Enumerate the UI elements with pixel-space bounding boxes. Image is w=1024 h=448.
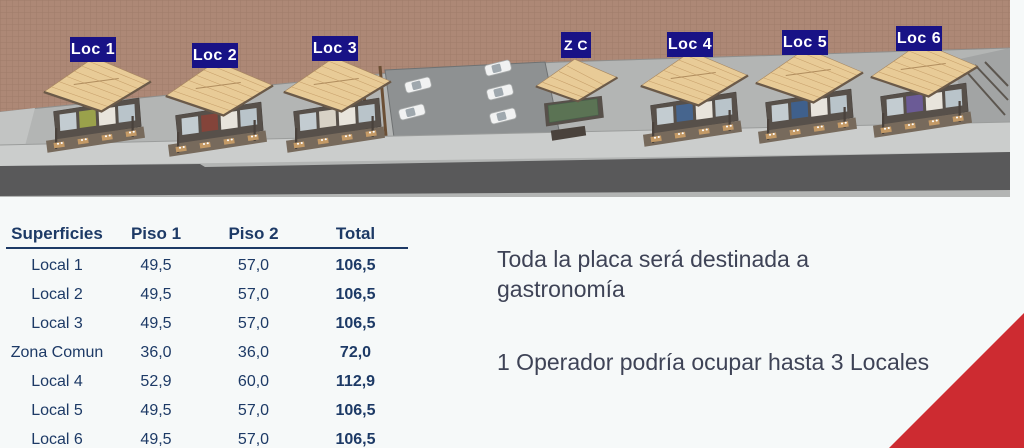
label-loc-1: Loc 1 bbox=[70, 37, 116, 62]
table-row: Local 3 49,5 57,0 106,5 bbox=[6, 309, 408, 338]
label-loc-2: Loc 2 bbox=[192, 43, 238, 68]
row-piso1: 49,5 bbox=[108, 396, 204, 425]
row-piso1: 49,5 bbox=[108, 251, 204, 280]
label-zona-comun: Z C bbox=[561, 32, 591, 58]
header-rule bbox=[6, 247, 408, 249]
surfaces-table-header: Superficies Piso 1 Piso 2 Total bbox=[6, 221, 408, 251]
row-label: Local 6 bbox=[6, 425, 108, 448]
row-total: 106,5 bbox=[303, 309, 408, 338]
row-piso2: 60,0 bbox=[204, 367, 303, 396]
site-render-canvas bbox=[0, 0, 1010, 197]
row-label: Local 4 bbox=[6, 367, 108, 396]
header-piso-1: Piso 1 bbox=[108, 221, 204, 247]
note-gastronomy: Toda la placa será destinada a gastronom… bbox=[497, 244, 867, 305]
row-piso2: 57,0 bbox=[204, 425, 303, 448]
table-row: Local 6 49,5 57,0 106,5 bbox=[6, 425, 408, 448]
row-piso2: 57,0 bbox=[204, 309, 303, 338]
surfaces-table: Superficies Piso 1 Piso 2 Total Local 1 … bbox=[6, 221, 408, 448]
table-row: Local 1 49,5 57,0 106,5 bbox=[6, 251, 408, 280]
row-piso2: 57,0 bbox=[204, 396, 303, 425]
table-row: Local 4 52,9 60,0 112,9 bbox=[6, 367, 408, 396]
table-row: Local 2 49,5 57,0 106,5 bbox=[6, 280, 408, 309]
parking-area bbox=[385, 60, 560, 145]
slide-background: Loc 1 Loc 2 Loc 3 Z C Loc 4 Loc 5 Loc 6 … bbox=[0, 0, 1024, 448]
header-superficies: Superficies bbox=[6, 221, 108, 247]
label-loc-4: Loc 4 bbox=[667, 32, 713, 57]
row-label: Local 3 bbox=[6, 309, 108, 338]
row-total: 106,5 bbox=[303, 425, 408, 448]
row-total: 112,9 bbox=[303, 367, 408, 396]
header-piso-2: Piso 2 bbox=[204, 221, 303, 247]
notes-block: Toda la placa será destinada a gastronom… bbox=[497, 244, 977, 377]
note-operator: 1 Operador podría ocupar hasta 3 Locales bbox=[497, 347, 977, 377]
row-total: 106,5 bbox=[303, 396, 408, 425]
row-piso1: 36,0 bbox=[108, 338, 204, 367]
header-total: Total bbox=[303, 221, 408, 247]
row-total: 106,5 bbox=[303, 251, 408, 280]
row-piso1: 52,9 bbox=[108, 367, 204, 396]
row-piso1: 49,5 bbox=[108, 309, 204, 338]
row-label: Zona Comun bbox=[6, 338, 108, 367]
row-piso2: 57,0 bbox=[204, 251, 303, 280]
row-piso1: 49,5 bbox=[108, 280, 204, 309]
row-total: 72,0 bbox=[303, 338, 408, 367]
row-piso2: 36,0 bbox=[204, 338, 303, 367]
row-total: 106,5 bbox=[303, 280, 408, 309]
table-row: Zona Comun 36,0 36,0 72,0 bbox=[6, 338, 408, 367]
table-row: Local 5 49,5 57,0 106,5 bbox=[6, 396, 408, 425]
row-label: Local 1 bbox=[6, 251, 108, 280]
site-render-3d: Loc 1 Loc 2 Loc 3 Z C Loc 4 Loc 5 Loc 6 bbox=[0, 0, 1010, 197]
row-piso1: 49,5 bbox=[108, 425, 204, 448]
label-loc-6: Loc 6 bbox=[896, 26, 942, 51]
row-label: Local 5 bbox=[6, 396, 108, 425]
row-piso2: 57,0 bbox=[204, 280, 303, 309]
label-loc-5: Loc 5 bbox=[782, 30, 828, 55]
label-loc-3: Loc 3 bbox=[312, 36, 358, 61]
row-label: Local 2 bbox=[6, 280, 108, 309]
